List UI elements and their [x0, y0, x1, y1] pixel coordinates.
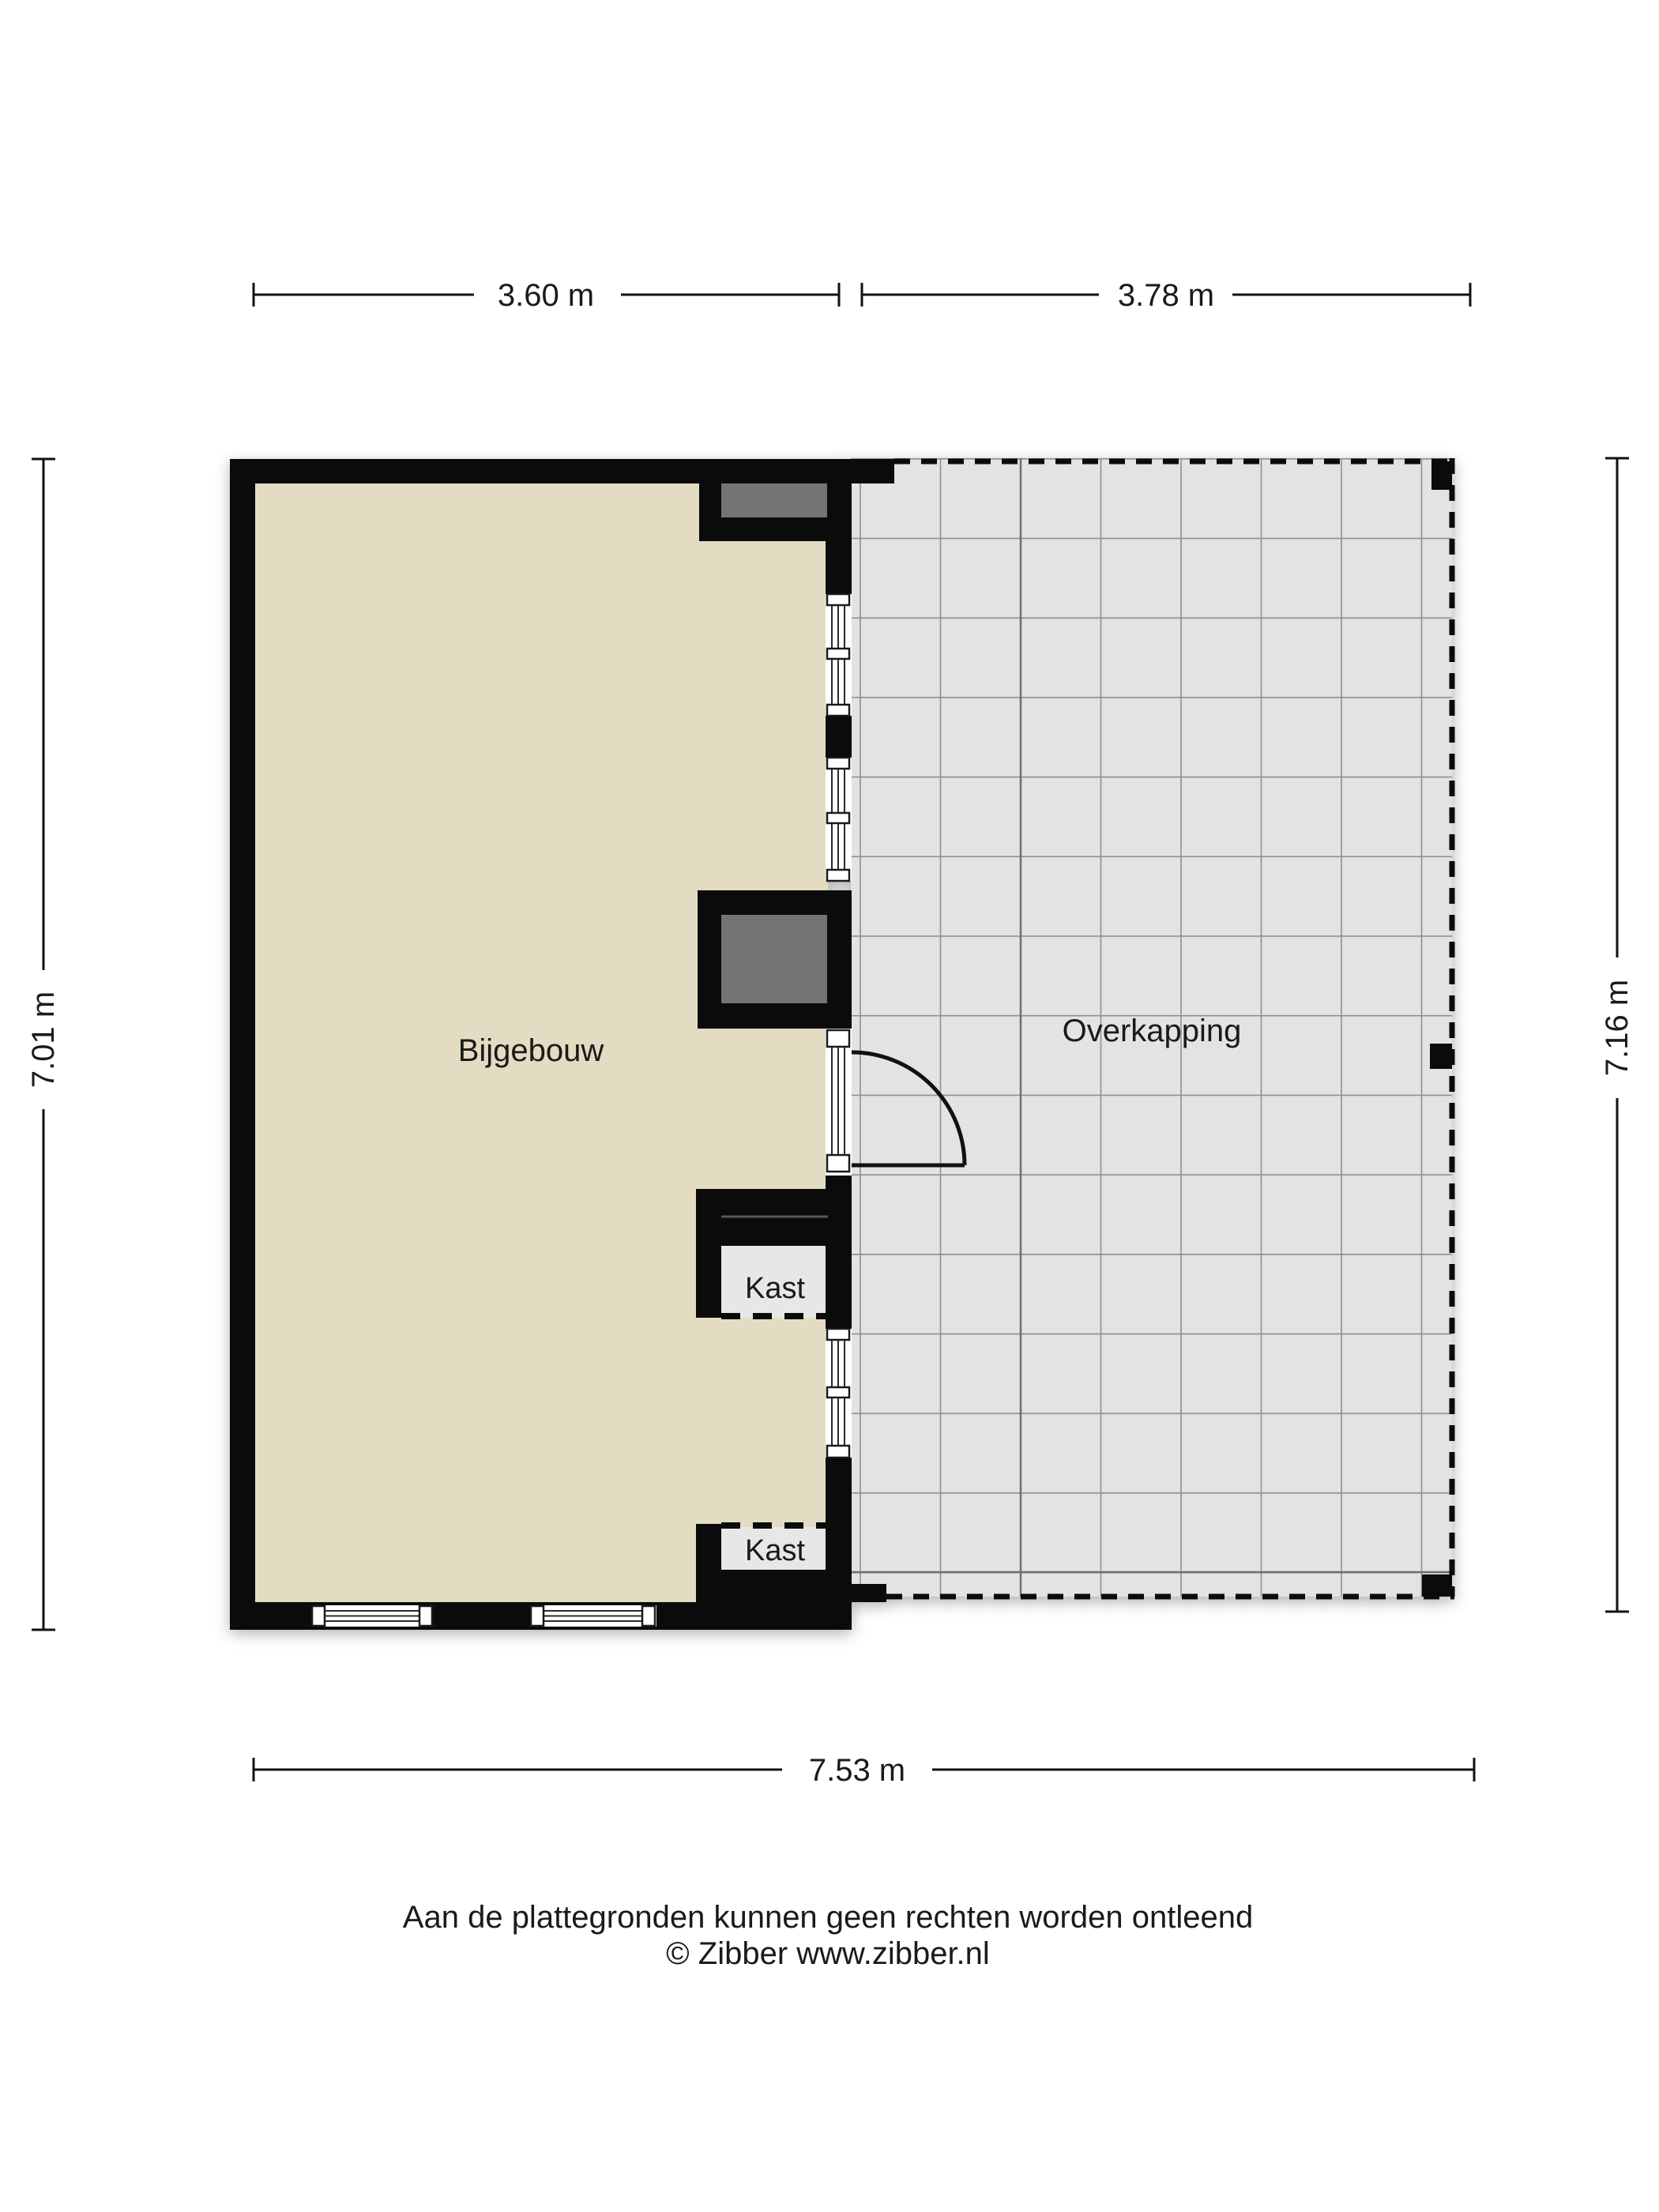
- wall-bottom-right-stub: [851, 1584, 886, 1602]
- dim-label-bottom: 7.53 m: [809, 1753, 905, 1788]
- window-frame: [312, 1606, 325, 1626]
- window-frame: [827, 758, 849, 769]
- dimension-top-right: 3.78 m: [862, 278, 1470, 313]
- window-frame: [531, 1606, 544, 1626]
- closet-label-1: Kast: [745, 1272, 805, 1305]
- window-frame: [419, 1606, 432, 1626]
- dim-label-top-left: 3.60 m: [498, 278, 594, 313]
- dimension-right: 7.16 m: [1600, 458, 1635, 1612]
- canopy-post-middle: [1430, 1044, 1452, 1069]
- niche-2-inset: [721, 915, 827, 1003]
- closet-2-bottom-wall: [696, 1570, 852, 1630]
- floor-plan-drawing: 3.60 m 3.78 m 7.53 m 7.01 m 7.16 m Bijge…: [0, 0, 1659, 2212]
- window-right-1: [826, 594, 852, 716]
- dimension-top-left: 3.60 m: [254, 278, 839, 313]
- wall-right-segment-1: [826, 541, 852, 594]
- closet-1-left-wall: [696, 1189, 721, 1318]
- window-mullion: [827, 813, 849, 823]
- canopy-post-top: [1431, 461, 1452, 490]
- window-right-2: [826, 758, 852, 881]
- wall-left: [230, 459, 255, 1630]
- window-frame: [827, 1446, 849, 1458]
- dimension-left: 7.01 m: [26, 459, 61, 1630]
- door-opening: [826, 1029, 852, 1176]
- door-frame: [827, 1030, 849, 1047]
- dimension-bottom: 7.53 m: [254, 1753, 1474, 1788]
- canopy-post-bottom: [1422, 1574, 1452, 1597]
- window-mullion: [827, 649, 849, 659]
- wall-right-segment-2: [826, 716, 852, 758]
- door-frame: [827, 1155, 849, 1172]
- window-bottom-2: [530, 1605, 656, 1627]
- window-frame: [827, 1329, 849, 1340]
- dim-label-top-right: 3.78 m: [1118, 278, 1214, 313]
- dim-label-right: 7.16 m: [1600, 980, 1635, 1076]
- window-right-3: [826, 1329, 852, 1458]
- window-frame: [827, 705, 849, 716]
- window-frame: [827, 594, 849, 605]
- closet-2-left-wall: [696, 1524, 721, 1571]
- room-label-overkapping: Overkapping: [1063, 1014, 1242, 1048]
- window-mullion: [827, 1387, 849, 1398]
- dim-label-left: 7.01 m: [26, 991, 61, 1088]
- floor-plan: [230, 458, 1454, 1630]
- window-frame: [642, 1606, 655, 1626]
- footer-copyright: © Zibber www.zibber.nl: [666, 1936, 990, 1971]
- window-bottom-1: [311, 1605, 433, 1627]
- closet-label-2: Kast: [745, 1534, 805, 1567]
- wall-top: [230, 459, 894, 483]
- niche-1-inset: [721, 483, 827, 517]
- window-frame: [827, 870, 849, 881]
- room-label-bijgebouw: Bijgebouw: [458, 1033, 604, 1068]
- floor-plan-page: 3.60 m 3.78 m 7.53 m 7.01 m 7.16 m Bijge…: [0, 0, 1659, 2212]
- footer-disclaimer: Aan de plattegronden kunnen geen rechten…: [403, 1900, 1253, 1935]
